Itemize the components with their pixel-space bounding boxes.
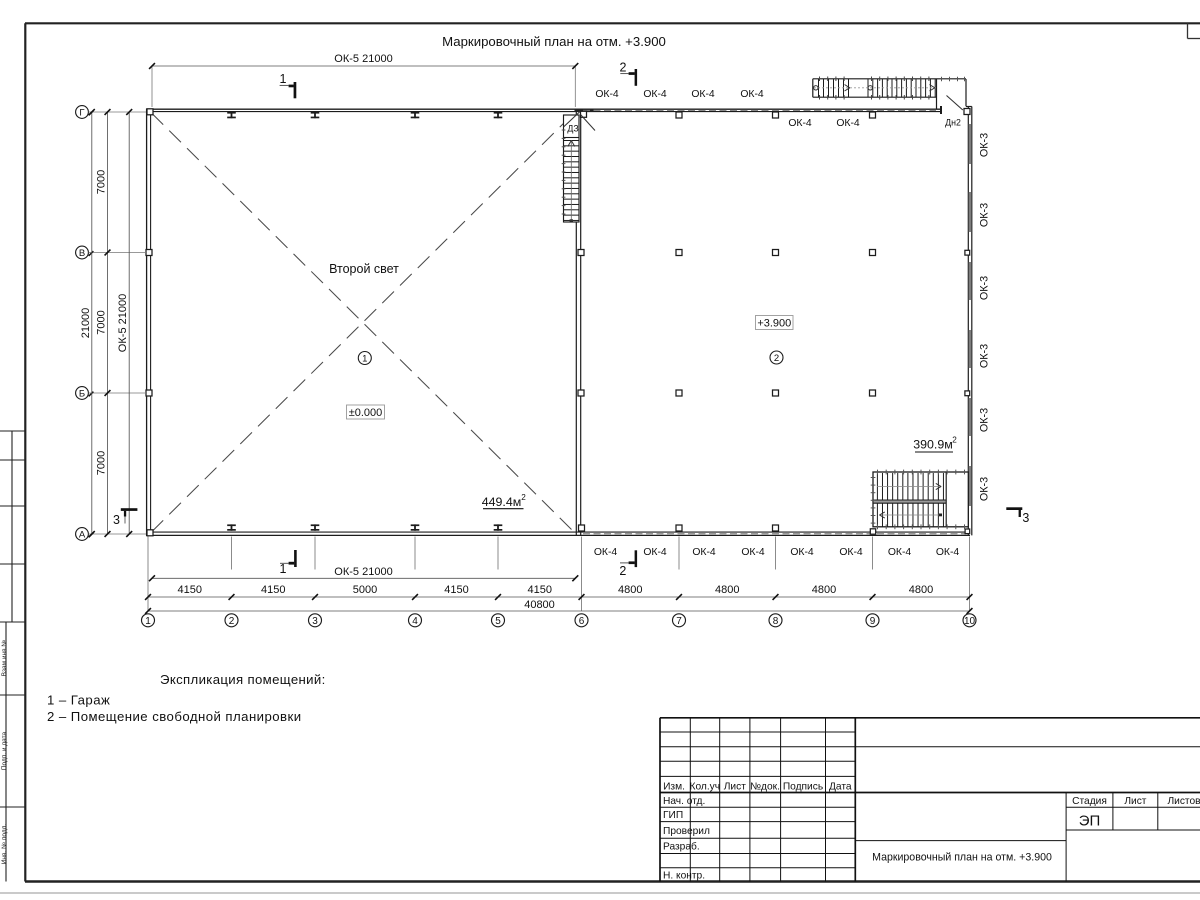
svg-text:А: А	[79, 530, 86, 541]
svg-text:№док.: №док.	[750, 781, 780, 792]
svg-text:ОК-4: ОК-4	[595, 89, 619, 100]
svg-text:7000: 7000	[96, 451, 108, 475]
svg-text:ОК-5 21000: ОК-5 21000	[334, 53, 392, 65]
svg-text:ГИП: ГИП	[663, 810, 683, 821]
svg-text:Дн2: Дн2	[945, 118, 961, 128]
svg-text:8: 8	[773, 616, 779, 627]
svg-text:Изм.: Изм.	[663, 781, 685, 792]
svg-text:4800: 4800	[909, 584, 933, 596]
svg-text:ОК-4: ОК-4	[692, 547, 716, 558]
svg-text:449.4м: 449.4м	[482, 495, 522, 509]
svg-text:2 – Помещение свободной планир: 2 – Помещение свободной планировки	[47, 709, 302, 724]
svg-text:+3.900: +3.900	[757, 318, 791, 330]
svg-text:ЭП: ЭП	[1079, 813, 1101, 830]
svg-text:ОК-3: ОК-3	[979, 477, 991, 501]
svg-text:Стадия: Стадия	[1072, 796, 1107, 807]
svg-text:4800: 4800	[618, 584, 642, 596]
svg-text:ОК-4: ОК-4	[740, 89, 764, 100]
svg-text:ОК-3: ОК-3	[979, 133, 991, 157]
svg-text:ОК-3: ОК-3	[979, 203, 991, 227]
svg-text:ОК-4: ОК-4	[643, 89, 667, 100]
svg-text:ДЗ: ДЗ	[567, 124, 578, 134]
svg-text:1: 1	[280, 562, 287, 576]
svg-text:1: 1	[362, 354, 367, 365]
svg-text:ОК-4: ОК-4	[691, 89, 715, 100]
svg-text:2: 2	[521, 493, 526, 502]
svg-text:7000: 7000	[96, 170, 108, 194]
svg-text:10: 10	[964, 616, 976, 627]
svg-text:7000: 7000	[96, 310, 108, 334]
svg-text:4800: 4800	[812, 584, 836, 596]
svg-text:ОК-4: ОК-4	[643, 547, 667, 558]
svg-text:Нач. отд.: Нач. отд.	[663, 796, 705, 807]
svg-text:3: 3	[312, 616, 318, 627]
svg-text:5000: 5000	[353, 584, 377, 596]
svg-text:Лист: Лист	[724, 781, 746, 792]
svg-text:ОК-4: ОК-4	[936, 547, 960, 558]
svg-text:3: 3	[113, 513, 120, 527]
svg-text:ОК-4: ОК-4	[788, 118, 812, 129]
svg-text:4150: 4150	[528, 584, 552, 596]
svg-text:7: 7	[676, 616, 682, 627]
svg-text:Г: Г	[79, 108, 84, 119]
svg-text:Второй свет: Второй свет	[329, 262, 399, 276]
svg-text:ОК-4: ОК-4	[836, 118, 860, 129]
svg-text:1: 1	[145, 616, 151, 627]
svg-text:Взам.инв.№: Взам.инв.№	[1, 640, 8, 677]
svg-text:Маркировочный план на отм. +3.: Маркировочный план на отм. +3.900	[872, 852, 1052, 864]
svg-text:5: 5	[495, 616, 501, 627]
svg-text:2: 2	[619, 564, 626, 578]
svg-text:±0.000: ±0.000	[349, 407, 383, 419]
svg-text:ОК-3: ОК-3	[979, 408, 991, 432]
svg-text:2: 2	[229, 616, 235, 627]
svg-text:Листов: Листов	[1167, 796, 1200, 807]
svg-text:Инв. № подл.: Инв. № подл.	[1, 824, 8, 865]
svg-text:В: В	[79, 248, 85, 259]
svg-text:ОК-4: ОК-4	[888, 547, 912, 558]
svg-text:Дата: Дата	[829, 781, 852, 792]
svg-text:ОК-4: ОК-4	[594, 547, 618, 558]
svg-text:Кол.уч: Кол.уч	[690, 781, 721, 792]
svg-text:ОК-4: ОК-4	[741, 547, 765, 558]
svg-text:4150: 4150	[178, 584, 202, 596]
svg-text:9: 9	[870, 616, 876, 627]
svg-text:Подп. и дата: Подп. и дата	[1, 731, 8, 770]
svg-text:ОК-5 21000: ОК-5 21000	[117, 294, 129, 352]
svg-text:1 – Гараж: 1 – Гараж	[47, 693, 110, 708]
svg-text:ОК-4: ОК-4	[790, 547, 814, 558]
svg-text:Маркировочный план на отм. +3.: Маркировочный план на отм. +3.900	[442, 34, 666, 49]
svg-text:Экспликация помещений:: Экспликация помещений:	[160, 672, 326, 687]
svg-text:4150: 4150	[444, 584, 468, 596]
svg-text:2: 2	[620, 61, 627, 75]
svg-text:4: 4	[412, 616, 418, 627]
svg-text:Н. контр.: Н. контр.	[663, 871, 705, 882]
svg-text:390.9м: 390.9м	[913, 438, 953, 452]
svg-text:Разраб.: Разраб.	[663, 841, 700, 853]
svg-text:4800: 4800	[715, 584, 739, 596]
svg-text:6: 6	[579, 616, 585, 627]
svg-text:ОК-3: ОК-3	[979, 276, 991, 300]
svg-text:ОК-3: ОК-3	[979, 344, 991, 368]
svg-text:2: 2	[952, 436, 957, 445]
svg-text:ОК-5 21000: ОК-5 21000	[334, 566, 392, 578]
svg-text:3: 3	[1022, 511, 1029, 525]
svg-text:Лист: Лист	[1124, 796, 1146, 807]
svg-text:1: 1	[280, 72, 287, 86]
svg-text:ОК-4: ОК-4	[839, 547, 863, 558]
svg-text:Подпись: Подпись	[783, 781, 823, 792]
svg-text:21000: 21000	[80, 308, 92, 339]
svg-text:4150: 4150	[261, 584, 285, 596]
svg-text:40800: 40800	[524, 599, 555, 611]
svg-text:2: 2	[774, 353, 779, 364]
svg-text:Проверил: Проверил	[663, 826, 710, 837]
svg-text:Б: Б	[79, 389, 85, 400]
